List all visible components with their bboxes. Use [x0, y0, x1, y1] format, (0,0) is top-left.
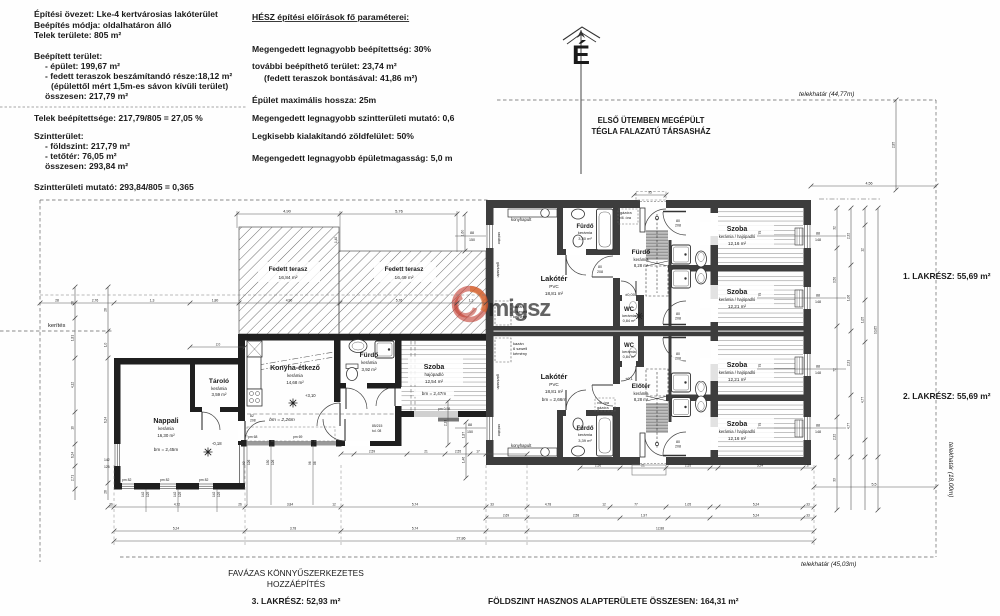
svg-text:14,68 m²: 14,68 m²	[286, 380, 304, 385]
svg-text:82: 82	[250, 414, 254, 418]
svg-text:12,21 m²: 12,21 m²	[728, 377, 747, 382]
svg-text:26: 26	[238, 503, 242, 507]
svg-text:pm 69: pm 69	[293, 435, 303, 439]
svg-text:bm = 2,45m: bm = 2,45m	[154, 447, 179, 452]
svg-text:5,74: 5,74	[412, 503, 418, 507]
svg-text:+3,10: +3,10	[305, 393, 316, 398]
svg-text:összesen: 217,79 m²: összesen: 217,79 m²	[45, 91, 128, 101]
svg-text:3,30 m²: 3,30 m²	[578, 236, 592, 241]
svg-text:88: 88	[816, 294, 820, 298]
svg-text:Fürdő: Fürdő	[360, 352, 379, 359]
svg-text:142: 142	[212, 491, 216, 497]
svg-text:126: 126	[247, 459, 251, 465]
svg-text:2,58: 2,58	[573, 514, 579, 518]
svg-text:12,88: 12,88	[656, 527, 664, 531]
svg-text:3,84: 3,84	[287, 503, 293, 507]
svg-text:5,24: 5,24	[753, 514, 759, 518]
svg-text:konyhapult: konyhapult	[511, 443, 532, 448]
svg-text:3,78: 3,78	[290, 527, 296, 531]
svg-text:1. LAKRÉSZ: 55,69 m²: 1. LAKRÉSZ: 55,69 m²	[903, 270, 991, 281]
svg-text:208: 208	[675, 445, 681, 449]
svg-text:Megengedett legnagyobb szintte: Megengedett legnagyobb szintterületi mut…	[252, 113, 455, 123]
svg-text:Épület maximális hossza: 25m: Épület maximális hossza: 25m	[252, 95, 377, 105]
svg-text:2,55: 2,55	[455, 450, 461, 454]
svg-text:2,55: 2,55	[685, 464, 691, 468]
svg-text:75: 75	[758, 423, 762, 427]
svg-text:2,18: 2,18	[444, 420, 448, 426]
svg-text:pm 68: pm 68	[248, 435, 258, 439]
svg-text:HÉSZ építési előírások fő para: HÉSZ építési előírások fő paraméterei:	[252, 12, 409, 22]
svg-text:2,85: 2,85	[892, 142, 896, 148]
svg-text:85/215: 85/215	[372, 424, 382, 428]
svg-text:telekhatár (18,00m): telekhatár (18,00m)	[947, 442, 954, 497]
svg-text:kerámia: kerámia	[622, 314, 636, 318]
svg-text:Szintterületi mutató: 293,84/8: Szintterületi mutató: 293,84/805 = 0,365	[34, 182, 194, 192]
svg-text:- épület: 199,67 m²: - épület: 199,67 m²	[45, 61, 120, 71]
svg-text:tol. 08: tol. 08	[372, 429, 381, 433]
svg-text:-0,18: -0,18	[212, 441, 222, 446]
svg-text:208: 208	[675, 357, 681, 361]
svg-text:12,16 m²: 12,16 m²	[728, 436, 747, 441]
svg-text:3,50: 3,50	[833, 277, 837, 283]
svg-text:1,05: 1,05	[861, 317, 865, 323]
svg-text:208: 208	[675, 317, 681, 321]
svg-text:Szoba: Szoba	[424, 364, 445, 371]
svg-text:- tetőtér: 76,05 m²: - tetőtér: 76,05 m²	[45, 151, 117, 161]
svg-text:8,28 m²: 8,28 m²	[634, 263, 649, 268]
svg-text:telekhatár (44,77m): telekhatár (44,77m)	[799, 91, 854, 98]
svg-text:É: É	[572, 39, 590, 70]
svg-text:bm = 2,26m: bm = 2,26m	[269, 417, 294, 423]
svg-text:Előtér: Előtér	[632, 383, 651, 390]
svg-text:összesen: 293,84 m²: összesen: 293,84 m²	[45, 161, 128, 171]
svg-text:1,80: 1,80	[212, 299, 219, 303]
svg-text:Konyha-étkező: Konyha-étkező	[270, 365, 320, 372]
svg-text:06: 06	[313, 461, 317, 465]
svg-text:80: 80	[676, 440, 680, 444]
svg-text:126: 126	[271, 459, 275, 465]
svg-text:80: 80	[676, 352, 680, 356]
svg-text:1,2: 1,2	[469, 299, 474, 303]
svg-text:kerámia: kerámia	[578, 432, 593, 437]
svg-text:Fürdő: Fürdő	[632, 249, 651, 256]
svg-text:5,5: 5,5	[872, 483, 877, 487]
svg-text:kerámia / hajópadló: kerámia / hajópadló	[719, 429, 756, 434]
svg-text:28: 28	[55, 299, 59, 303]
svg-text:1,3: 1,3	[150, 299, 155, 303]
svg-text:27,86: 27,86	[457, 537, 466, 541]
svg-text:Fedett terasz: Fedett terasz	[269, 266, 308, 273]
svg-text:további beépíthető terület: 23: további beépíthető terület: 23,74 m²	[252, 61, 397, 71]
svg-text:3. LAKRÉSZ: 52,93 m²: 3. LAKRÉSZ: 52,93 m²	[252, 596, 341, 606]
svg-text:0,84 m²: 0,84 m²	[623, 355, 637, 359]
svg-text:2,56: 2,56	[595, 464, 601, 468]
svg-text:95: 95	[648, 191, 652, 195]
svg-text:12,21 m²: 12,21 m²	[728, 304, 747, 309]
svg-text:(épülettől mért 1,5m-es sávon: (épülettől mért 1,5m-es sávon kívüli ter…	[51, 81, 228, 91]
svg-text:80: 80	[676, 219, 680, 223]
svg-text:WC: WC	[624, 343, 635, 349]
svg-text:80: 80	[676, 312, 680, 316]
svg-text:33: 33	[806, 503, 810, 507]
svg-text:18,81 m²: 18,81 m²	[545, 389, 564, 394]
svg-text:5,24: 5,24	[173, 527, 179, 531]
svg-text:konyhapult: konyhapult	[511, 217, 532, 222]
svg-text:208: 208	[250, 419, 256, 423]
svg-text:148: 148	[815, 300, 821, 304]
svg-text:17: 17	[476, 450, 480, 454]
svg-text:142: 142	[141, 491, 145, 497]
svg-text:bm = 2,47m: bm = 2,47m	[422, 391, 447, 396]
svg-text:1,97: 1,97	[641, 514, 647, 518]
svg-text:2,32: 2,32	[833, 434, 837, 440]
svg-text:16,49 m²: 16,49 m²	[395, 275, 414, 281]
svg-text:5,76: 5,76	[396, 299, 403, 303]
svg-text:33: 33	[806, 514, 810, 518]
svg-text:2,31: 2,31	[847, 360, 851, 366]
svg-text:17: 17	[806, 464, 810, 468]
svg-text:1,40: 1,40	[334, 237, 338, 243]
svg-text:6,24: 6,24	[71, 452, 75, 458]
svg-text:125: 125	[146, 491, 150, 497]
svg-text:26: 26	[109, 503, 113, 507]
svg-text:1,60: 1,60	[461, 230, 465, 237]
svg-text:5,24: 5,24	[753, 503, 759, 507]
svg-text:Beépítés módja: oldalhatáron á: Beépítés módja: oldalhatáron álló	[34, 20, 172, 30]
svg-text:kerámia: kerámia	[361, 360, 377, 365]
svg-text:1,87: 1,87	[462, 432, 466, 438]
svg-text:telekhatár (45,03m): telekhatár (45,03m)	[801, 561, 856, 568]
svg-text:28: 28	[104, 308, 108, 312]
svg-text:16,30 m²: 16,30 m²	[157, 433, 175, 438]
svg-text:PVC: PVC	[549, 382, 559, 387]
svg-text:12: 12	[602, 503, 606, 507]
svg-text:125: 125	[104, 465, 110, 469]
svg-text:HOZZÁÉPÍTÉS: HOZZÁÉPÍTÉS	[267, 579, 326, 589]
svg-text:16,84 m²: 16,84 m²	[279, 275, 298, 281]
svg-text:Szintterület:: Szintterület:	[34, 131, 84, 141]
svg-text:Lakótér: Lakótér	[541, 372, 568, 381]
svg-text:Tároló: Tároló	[209, 378, 229, 385]
svg-text:12,16 m²: 12,16 m²	[728, 241, 747, 246]
svg-text:kerítés: kerítés	[48, 323, 65, 329]
svg-text:Telek területe: 805 m²: Telek területe: 805 m²	[34, 30, 121, 40]
svg-text:88: 88	[816, 232, 820, 236]
svg-text:vill. óra: vill. óra	[619, 216, 632, 220]
svg-text:kerámia: kerámia	[578, 230, 593, 235]
svg-text:kémény: kémény	[513, 351, 527, 356]
svg-text:gázkazán: gázkazán	[496, 262, 500, 277]
svg-text:75: 75	[758, 231, 762, 235]
svg-text:150: 150	[467, 430, 473, 434]
svg-text:Megengedett legnagyobb épületm: Megengedett legnagyobb épületmagasság: 5…	[252, 153, 453, 163]
svg-text:±0,00: ±0,00	[625, 292, 636, 297]
svg-text:33: 33	[490, 503, 494, 507]
svg-text:pm 82: pm 82	[199, 478, 209, 482]
svg-text:77: 77	[634, 503, 638, 507]
svg-text:Szoba: Szoba	[727, 289, 748, 296]
svg-text:gázkazán: gázkazán	[496, 374, 500, 389]
svg-text:10,65: 10,65	[874, 326, 878, 334]
svg-text:5,24: 5,24	[757, 464, 763, 468]
svg-text:4,78: 4,78	[545, 503, 551, 507]
svg-text:+0,1: +0,1	[625, 376, 634, 381]
svg-text:2,59: 2,59	[369, 450, 375, 454]
svg-text:kerámia / hajópadló: kerámia / hajópadló	[719, 234, 756, 239]
svg-text:125: 125	[217, 491, 221, 497]
svg-text:PVC: PVC	[549, 284, 559, 289]
svg-text:148: 148	[815, 238, 821, 242]
svg-text:4,12: 4,12	[71, 382, 75, 388]
svg-text:2. LAKRÉSZ: 55,69 m²: 2. LAKRÉSZ: 55,69 m²	[903, 390, 991, 401]
svg-text:gázóra: gázóra	[597, 406, 609, 410]
svg-text:21: 21	[424, 450, 428, 454]
svg-text:75: 75	[758, 364, 762, 368]
svg-text:pm 82: pm 82	[160, 478, 170, 482]
svg-text:28: 28	[71, 301, 75, 305]
svg-text:21: 21	[641, 464, 645, 468]
svg-text:radiátor: radiátor	[497, 424, 501, 437]
svg-text:Szoba: Szoba	[727, 421, 748, 428]
svg-text:FAVÁZAS KÖNNYŰSZERKEZETES: FAVÁZAS KÖNNYŰSZERKEZETES	[228, 568, 364, 578]
svg-text:Szoba: Szoba	[727, 226, 748, 233]
svg-text:125: 125	[178, 491, 182, 497]
svg-text:88: 88	[468, 423, 472, 427]
svg-text:2,32: 2,32	[847, 233, 851, 239]
svg-text:radiátor: radiátor	[497, 232, 501, 245]
svg-text:Fedett terasz: Fedett terasz	[385, 266, 424, 273]
svg-text:72: 72	[833, 368, 837, 372]
svg-text:1,05: 1,05	[685, 503, 691, 507]
svg-text:3,92 m²: 3,92 m²	[362, 367, 377, 372]
svg-text:6,24: 6,24	[104, 417, 108, 423]
svg-text:0,84 m²: 0,84 m²	[623, 319, 637, 323]
svg-text:4,90: 4,90	[286, 299, 293, 303]
svg-text:Megengedett legnagyobb beépíte: Megengedett legnagyobb beépítettség: 30%	[252, 44, 431, 54]
svg-text:10: 10	[71, 426, 75, 430]
svg-text:(fedett teraszok bontásával: 4: (fedett teraszok bontásával: 41,86 m²)	[264, 73, 417, 83]
svg-text:- fedett teraszok beszámítandó: - fedett teraszok beszámítandó része:18,…	[45, 71, 232, 81]
svg-text:148: 148	[815, 371, 821, 375]
svg-text:1,46: 1,46	[462, 457, 466, 463]
svg-text:32: 32	[833, 226, 837, 230]
svg-text:5,74: 5,74	[412, 527, 418, 531]
svg-text:12: 12	[332, 503, 336, 507]
svg-text:208: 208	[597, 270, 603, 274]
svg-text:1,0: 1,0	[104, 343, 108, 348]
svg-text:TÉGLA FALAZATÚ TÁRSASHÁZ: TÉGLA FALAZATÚ TÁRSASHÁZ	[591, 127, 710, 136]
svg-text:- földszint: 217,79 m²: - földszint: 217,79 m²	[45, 141, 130, 151]
svg-text:88: 88	[816, 365, 820, 369]
svg-text:142: 142	[173, 491, 177, 497]
svg-text:vill. óra: vill. óra	[597, 401, 610, 405]
svg-text:148: 148	[815, 430, 821, 434]
svg-text:kerámia: kerámia	[634, 257, 650, 262]
svg-text:migsz: migsz	[488, 295, 551, 322]
svg-text:208: 208	[675, 224, 681, 228]
svg-text:kerámia: kerámia	[622, 350, 636, 354]
svg-text:FÖLDSZINT HASZNOS ALAPTERÜLETE: FÖLDSZINT HASZNOS ALAPTERÜLETE ÖSSZESEN:…	[488, 596, 739, 606]
svg-text:75: 75	[758, 293, 762, 297]
svg-text:2,69: 2,69	[503, 514, 509, 518]
svg-text:2,0: 2,0	[216, 343, 221, 347]
svg-text:WC: WC	[624, 307, 635, 313]
svg-text:2,76: 2,76	[92, 299, 99, 303]
svg-text:3,39 m²: 3,39 m²	[578, 438, 592, 443]
svg-text:150: 150	[469, 238, 475, 242]
svg-text:96: 96	[308, 461, 312, 465]
svg-text:4,77: 4,77	[861, 397, 865, 403]
svg-text:80: 80	[598, 265, 602, 269]
svg-text:2,71: 2,71	[71, 475, 75, 481]
svg-text:150: 150	[266, 459, 270, 465]
svg-text:4,90: 4,90	[283, 209, 292, 214]
svg-text:12: 12	[861, 248, 865, 252]
svg-text:4,72: 4,72	[174, 503, 180, 507]
svg-text:4,77: 4,77	[847, 423, 851, 429]
svg-text:kerámia / hajópadló: kerámia / hajópadló	[719, 370, 756, 375]
svg-text:Lakótér: Lakótér	[541, 274, 568, 283]
svg-text:90: 90	[242, 461, 246, 465]
svg-text:kerámia: kerámia	[211, 386, 227, 391]
svg-text:5,76: 5,76	[395, 209, 404, 214]
svg-text:12,54 m²: 12,54 m²	[425, 379, 444, 384]
svg-text:1,81: 1,81	[71, 335, 75, 341]
svg-text:bm = 2,66m: bm = 2,66m	[542, 397, 567, 402]
svg-text:hajópadló: hajópadló	[424, 372, 444, 377]
svg-text:88: 88	[816, 424, 820, 428]
svg-text:kerámia: kerámia	[634, 391, 650, 396]
svg-text:pm 82: pm 82	[122, 478, 132, 482]
svg-text:28: 28	[104, 490, 108, 494]
svg-text:Telek beépítettsége: 217,79/80: Telek beépítettsége: 217,79/805 = 27,05 …	[34, 113, 203, 123]
svg-text:Építési övezet: Lke-4 kertváro: Építési övezet: Lke-4 kertvárosias lakót…	[34, 9, 218, 19]
svg-text:4,56: 4,56	[866, 182, 873, 186]
svg-text:1,06: 1,06	[847, 295, 851, 301]
svg-text:33: 33	[833, 478, 837, 482]
svg-text:3,59 m²: 3,59 m²	[212, 392, 227, 397]
svg-text:ELSŐ ÜTEMBEN MEGÉPÜLT: ELSŐ ÜTEMBEN MEGÉPÜLT	[598, 116, 705, 125]
svg-text:8,28 m²: 8,28 m²	[634, 397, 649, 402]
svg-text:gázóra: gázóra	[620, 211, 632, 215]
svg-text:Beépített terület:: Beépített terület:	[34, 51, 102, 61]
svg-text:kerámia: kerámia	[158, 426, 174, 431]
svg-text:Nappali: Nappali	[153, 418, 178, 425]
svg-text:142: 142	[104, 458, 110, 462]
svg-text:kerámia / hajópadló: kerámia / hajópadló	[719, 297, 756, 302]
svg-text:Legkisebb kialakítandó zöldfel: Legkisebb kialakítandó zöldfelület: 50%	[252, 131, 414, 141]
svg-text:Szoba: Szoba	[727, 362, 748, 369]
svg-text:pm 0,98: pm 0,98	[438, 407, 450, 411]
svg-text:88: 88	[470, 231, 474, 235]
svg-text:kerámia: kerámia	[287, 373, 303, 378]
